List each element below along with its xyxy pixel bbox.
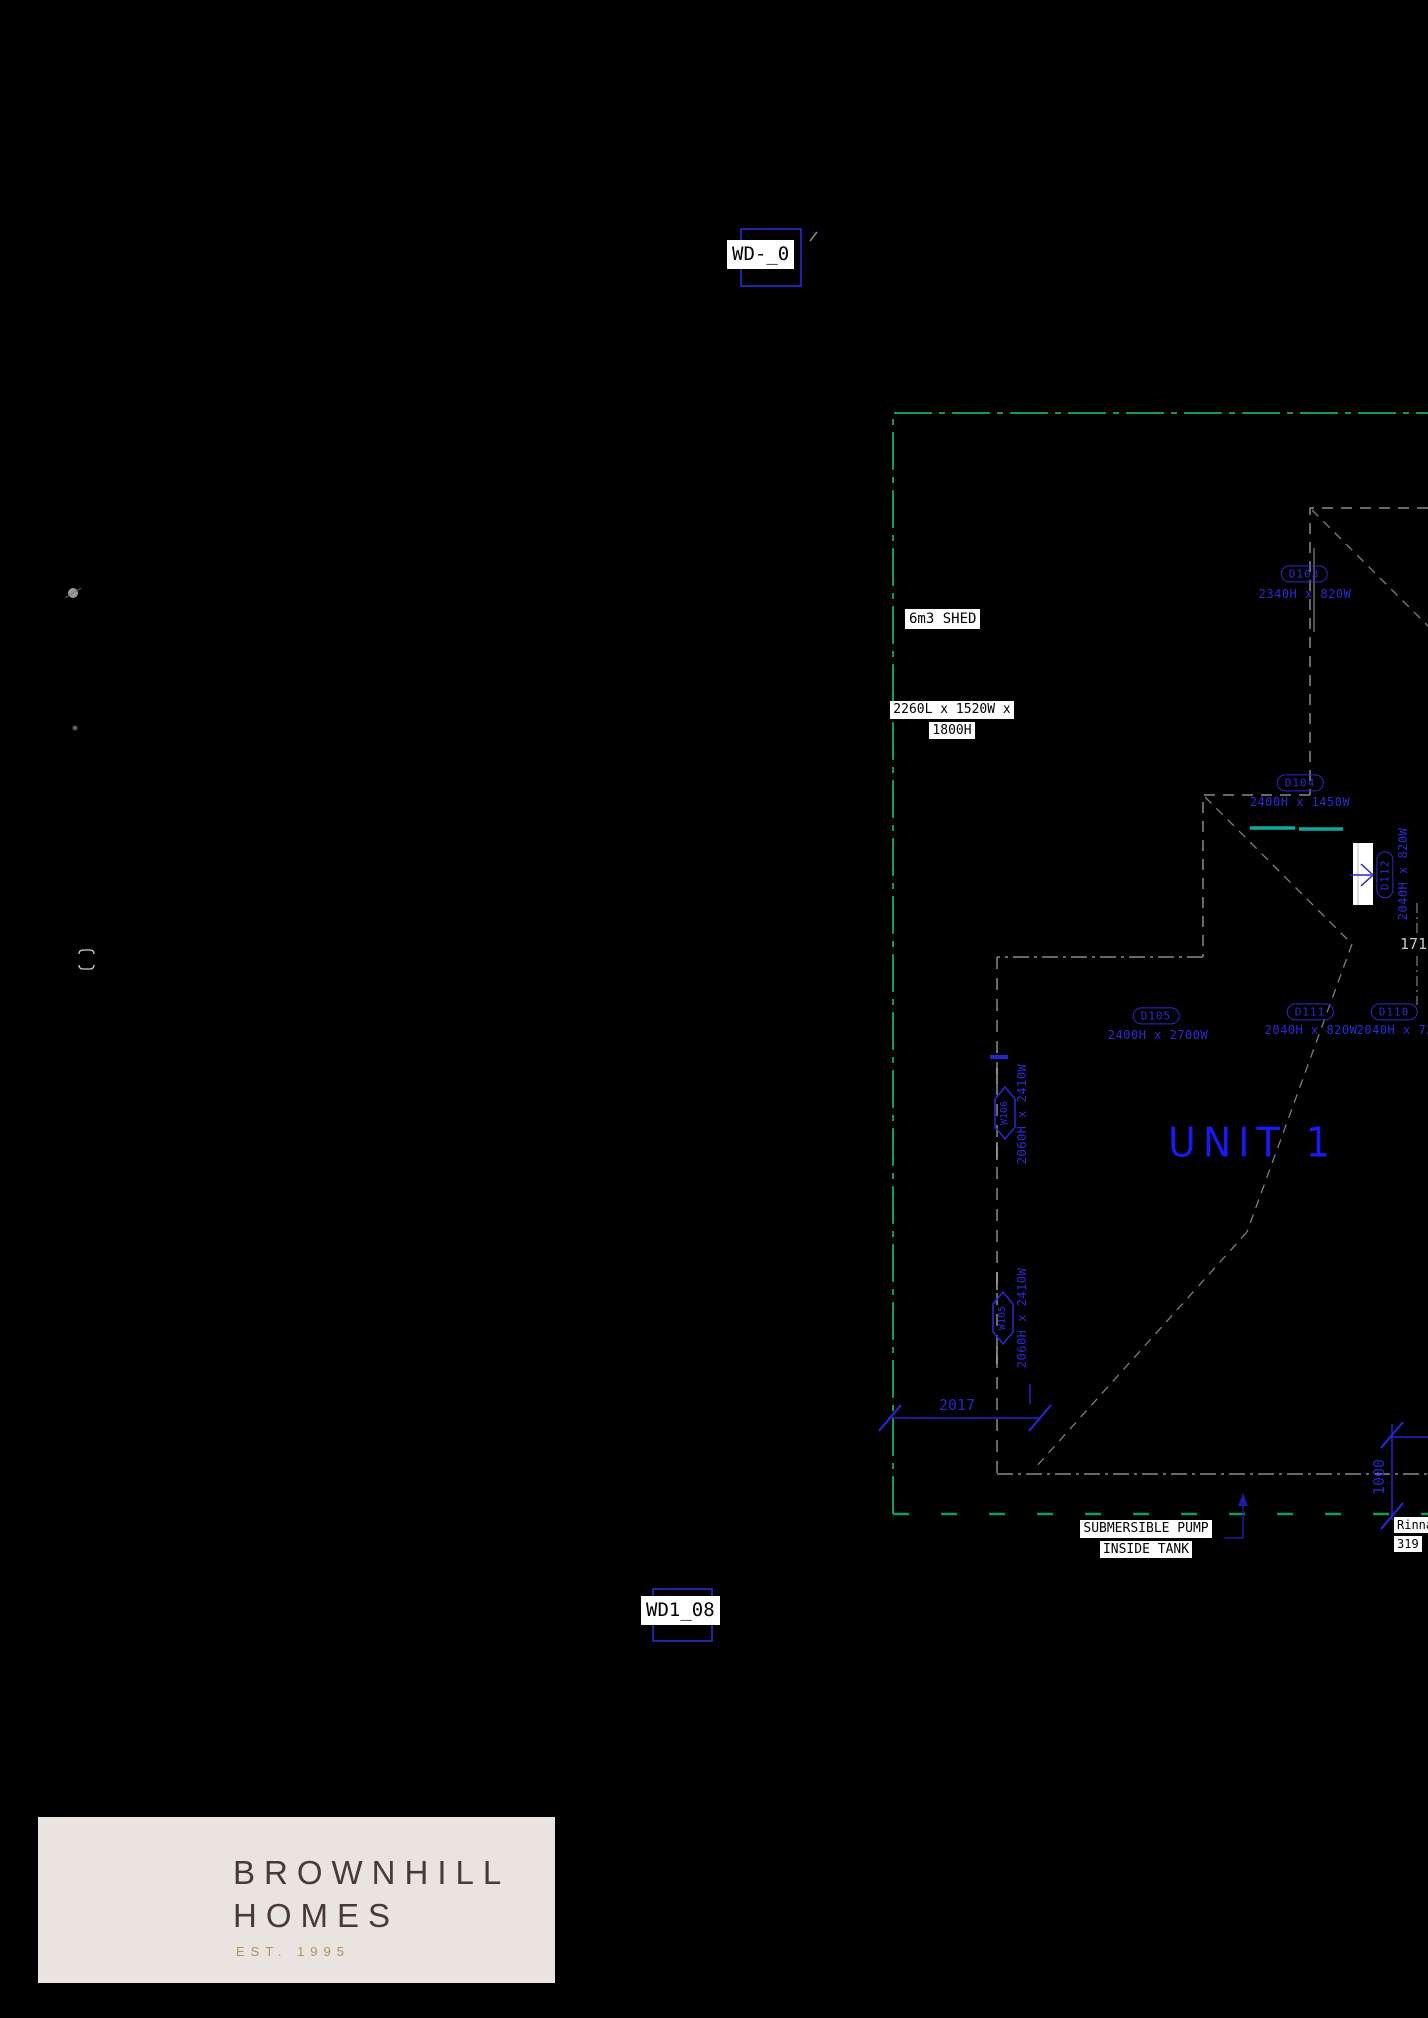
pump-leader-line — [1224, 1502, 1243, 1538]
roof-hip-bottom — [1035, 1232, 1247, 1468]
door-tag-d103: D103 — [1281, 565, 1328, 582]
door-tag-d105: D105 — [1133, 1007, 1180, 1024]
view-marker-label-top: WD-_0 — [727, 240, 794, 269]
roof-ridge — [1247, 944, 1352, 1232]
boundary-line-left-top — [893, 413, 1428, 1514]
logo-brand-line2: HOMES — [233, 1897, 399, 1935]
window-tag-w106: W106 — [1000, 1101, 1010, 1125]
building-outline-top — [1310, 508, 1428, 795]
pump-note: SUBMERSIBLE PUMP INSIDE TANK — [1066, 1517, 1226, 1558]
pump-leader-arrowhead — [1238, 1493, 1248, 1506]
edge-note: Rinnai 319 — [1394, 1514, 1428, 1552]
door-leaf — [1353, 843, 1373, 905]
building-outline-step — [1203, 795, 1310, 957]
door-size-d103: 2340H x 820W — [1259, 587, 1352, 601]
door-tag-d111: D111 — [1287, 1003, 1334, 1020]
door-size-d104: 2400H x 1450W — [1250, 795, 1350, 809]
edge-note-line1: Rinnai — [1394, 1517, 1428, 1533]
door-tag-d110: D110 — [1371, 1003, 1418, 1020]
door-size-d111: 2040H x 820W — [1265, 1023, 1358, 1037]
cad-sheet: { "drawing": { "markers": { "top": "WD-_… — [0, 0, 1428, 2018]
door-size-d110: 2040H x 720W — [1357, 1023, 1428, 1037]
door-size-d112: 2040H x 820W — [1396, 828, 1410, 921]
shed-size-note: 2260L x 1520W x 1800H — [882, 698, 1022, 739]
door-tag-d112: D112 — [1376, 852, 1393, 899]
shed-label: 6m3 SHED — [905, 609, 980, 629]
pump-note-line2: INSIDE TANK — [1100, 1541, 1192, 1559]
small-point-icon — [73, 726, 78, 731]
shed-size-line1: 2260L x 1520W x — [890, 701, 1013, 719]
dim-text-right: 1710 — [1400, 936, 1428, 953]
dim-text-height: 1000 — [1371, 1459, 1388, 1495]
marker-tick — [810, 232, 817, 241]
unit-title: UNIT 1 — [1168, 1122, 1337, 1165]
logo-brand-line1: BROWNHILL — [233, 1854, 510, 1892]
dim-text-width: 2017 — [939, 1397, 975, 1414]
plan-linework — [0, 0, 1428, 2018]
roof-hip-mid — [1205, 797, 1352, 944]
shed-size-line2: 1800H — [929, 722, 974, 740]
logo-established: EST. 1995 — [236, 1944, 350, 1959]
window-size-w105: 2060H x 2410W — [1015, 1268, 1029, 1368]
door-tag-d104: D104 — [1277, 774, 1324, 791]
view-marker-label-bottom: WD1_08 — [641, 1596, 720, 1625]
window-tag-w105: W105 — [998, 1306, 1008, 1330]
sliding-door-symbol — [1250, 828, 1343, 829]
door-size-d105: 2400H x 2700W — [1108, 1028, 1208, 1042]
bracket-symbol-icon — [79, 950, 94, 969]
edge-note-line2: 319 — [1394, 1536, 1422, 1552]
window-size-w106: 2060H x 2410W — [1015, 1064, 1029, 1164]
dim-line-height — [1392, 1424, 1428, 1520]
pump-note-line1: SUBMERSIBLE PUMP — [1080, 1520, 1211, 1538]
roof-hip-top — [1312, 510, 1428, 626]
